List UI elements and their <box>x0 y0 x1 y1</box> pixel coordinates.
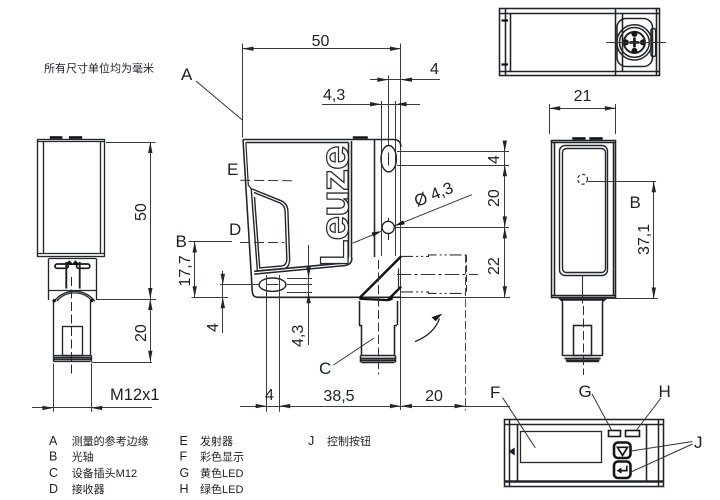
svg-text:控制按钮: 控制按钮 <box>327 434 371 448</box>
svg-text:B: B <box>630 193 641 212</box>
svg-text:J: J <box>694 433 703 452</box>
svg-text:光轴: 光轴 <box>72 450 94 464</box>
svg-text:所有尺寸单位均为毫米: 所有尺寸单位均为毫米 <box>44 61 154 75</box>
svg-text:Ø 4,3: Ø 4,3 <box>412 179 456 211</box>
svg-text:黄色LED: 黄色LED <box>200 466 243 480</box>
svg-text:E: E <box>227 160 238 179</box>
svg-text:G: G <box>180 466 190 480</box>
svg-text:彩色显示: 彩色显示 <box>200 450 244 464</box>
svg-text:20: 20 <box>133 324 150 342</box>
svg-text:A: A <box>181 65 193 84</box>
svg-text:4,3: 4,3 <box>323 87 345 104</box>
svg-text:A: A <box>49 434 58 448</box>
svg-text:4,3: 4,3 <box>290 325 307 347</box>
svg-text:M12x1: M12x1 <box>110 386 160 404</box>
svg-text:Leuze: Leuze <box>313 147 357 267</box>
svg-text:4: 4 <box>486 155 503 164</box>
svg-text:50: 50 <box>133 203 150 221</box>
svg-text:D: D <box>229 220 241 239</box>
svg-text:G: G <box>579 382 592 401</box>
svg-text:4: 4 <box>430 61 439 78</box>
svg-text:20: 20 <box>425 388 443 405</box>
svg-text:4: 4 <box>205 323 222 332</box>
svg-text:发射器: 发射器 <box>200 434 233 448</box>
svg-text:设备插头M12: 设备插头M12 <box>72 466 137 480</box>
svg-text:绿色LED: 绿色LED <box>200 482 243 496</box>
svg-text:37,1: 37,1 <box>636 224 653 255</box>
svg-text:J: J <box>308 434 314 448</box>
svg-text:C: C <box>319 359 331 378</box>
svg-text:21: 21 <box>574 88 592 105</box>
svg-text:38,5: 38,5 <box>323 388 354 405</box>
svg-text:E: E <box>180 434 188 448</box>
svg-text:H: H <box>180 482 189 496</box>
svg-text:接收器: 接收器 <box>72 482 105 496</box>
svg-text:B: B <box>176 232 187 251</box>
svg-text:测量的参考边缘: 测量的参考边缘 <box>72 434 149 448</box>
svg-text:B: B <box>49 450 57 464</box>
svg-text:F: F <box>180 450 188 464</box>
svg-text:20: 20 <box>486 189 503 207</box>
svg-text:F: F <box>490 383 500 402</box>
svg-text:4: 4 <box>265 387 274 404</box>
svg-text:50: 50 <box>312 33 330 50</box>
svg-text:C: C <box>49 466 58 480</box>
svg-text:17,7: 17,7 <box>177 255 194 286</box>
svg-text:D: D <box>49 482 58 496</box>
svg-text:22: 22 <box>486 257 503 275</box>
